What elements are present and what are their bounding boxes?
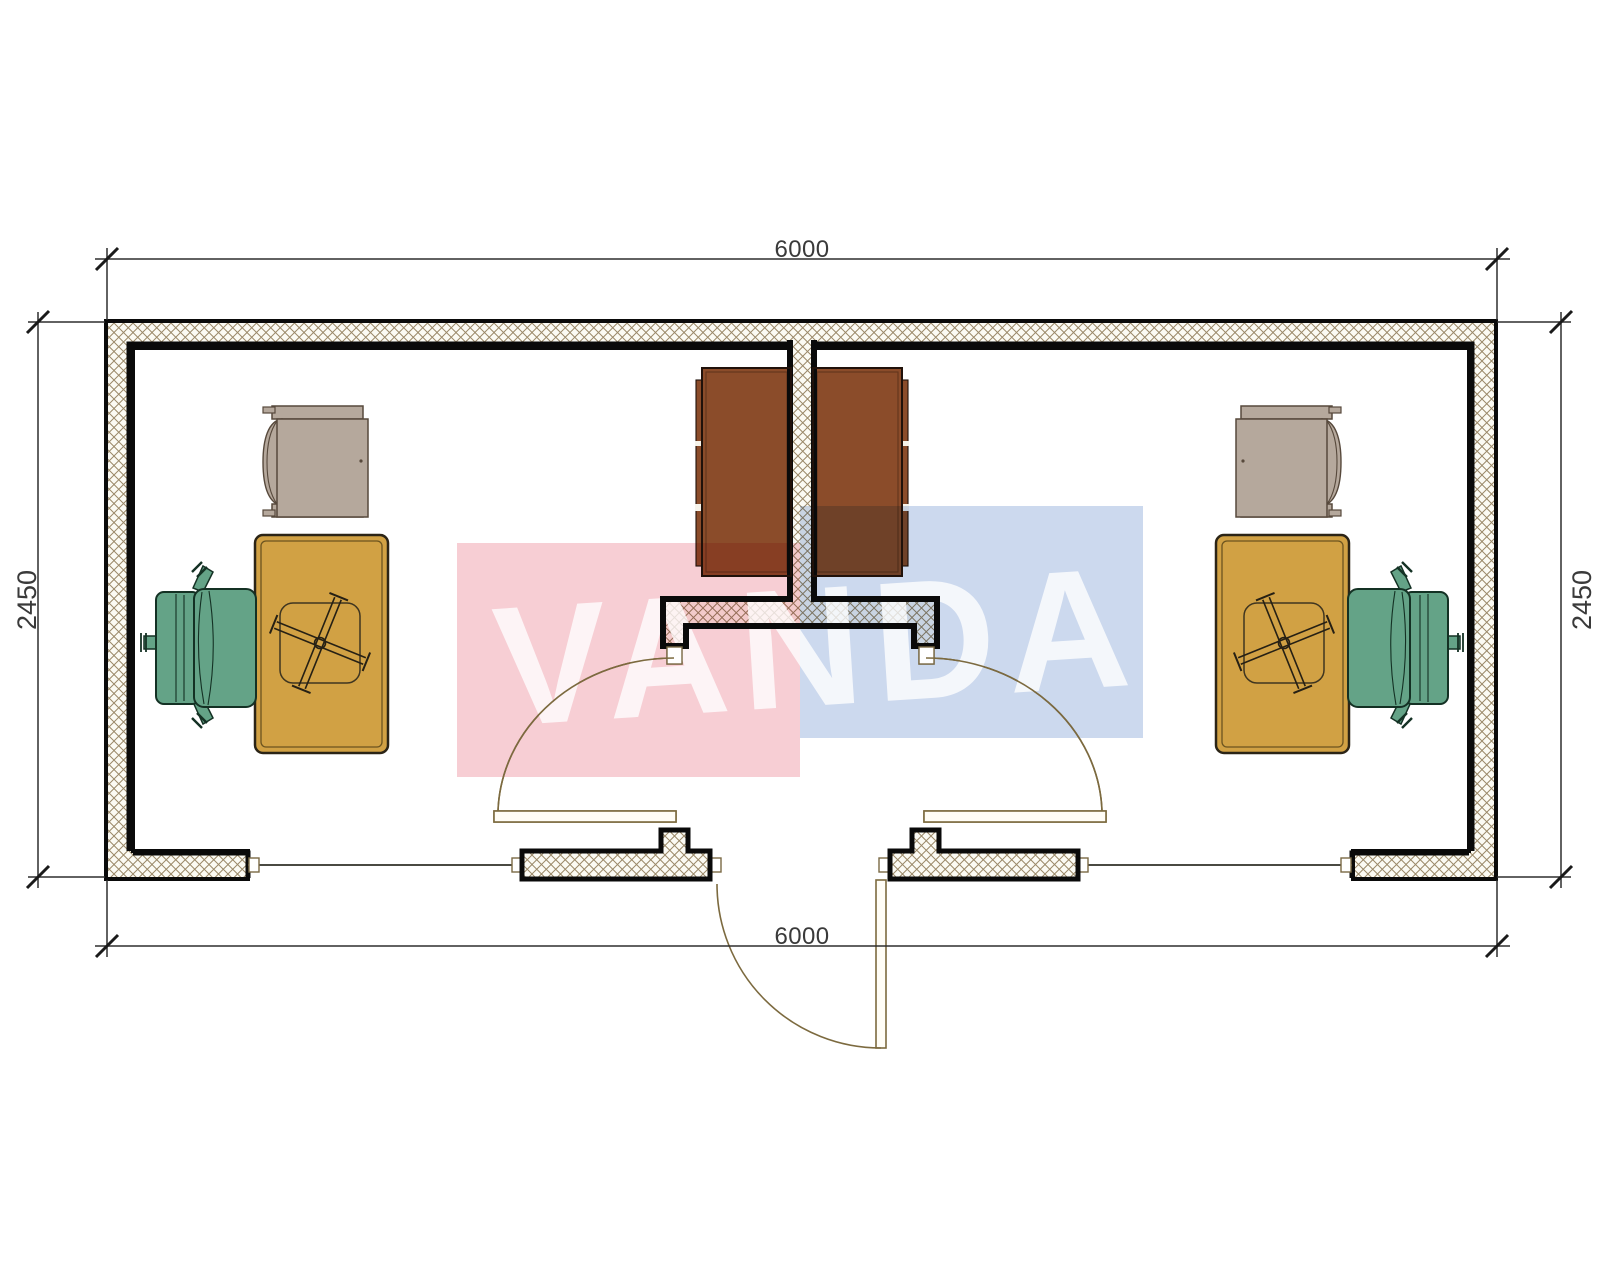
svg-text:2450: 2450: [1567, 570, 1597, 630]
svg-text:6000: 6000: [775, 236, 830, 263]
svg-text:2450: 2450: [12, 570, 42, 630]
svg-text:6000: 6000: [775, 923, 830, 950]
